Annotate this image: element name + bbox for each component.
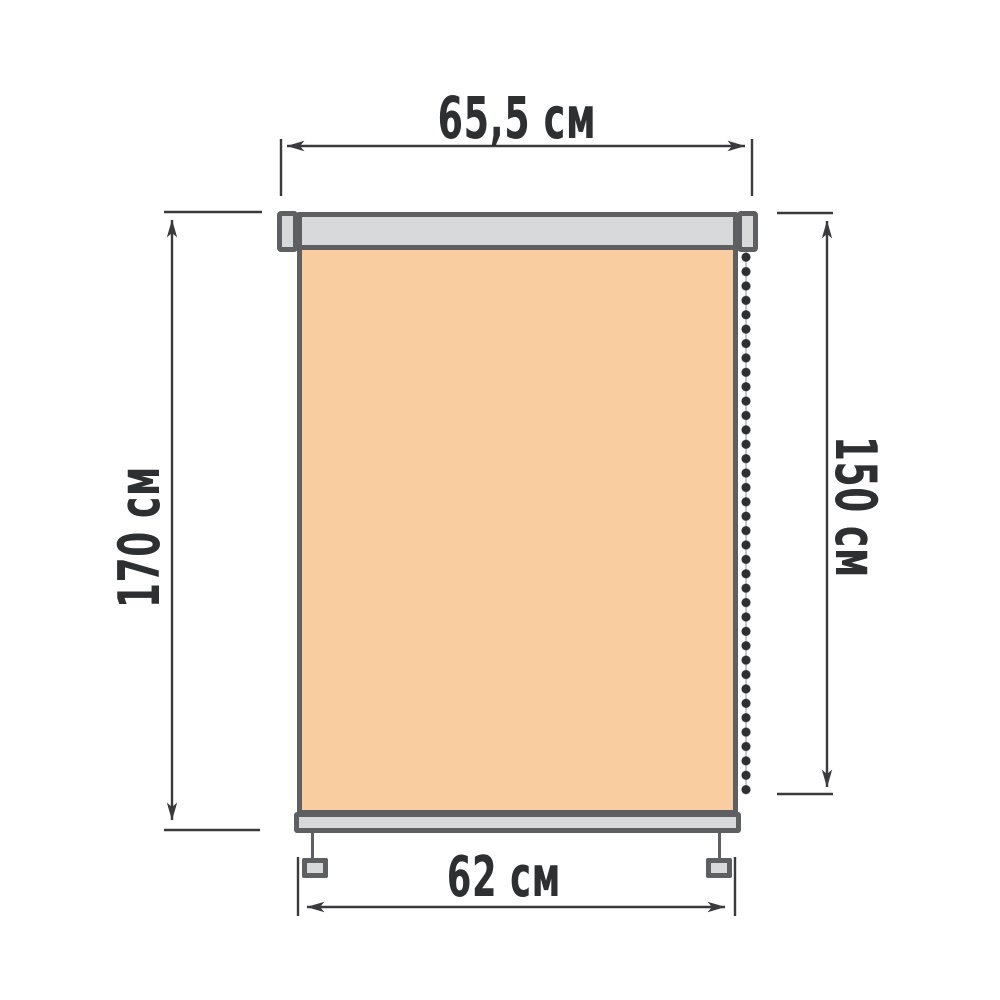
blind-fabric-panel (297, 245, 738, 815)
dimension-label-top-width: 65,5 см (372, 84, 662, 152)
bead-chain (741, 250, 751, 797)
dimension-label-bottom-width: 62 см (359, 845, 649, 910)
mounting-clip-left (302, 858, 328, 878)
mounting-clip-right (706, 858, 732, 878)
dimension-label-right-height: 150 см (825, 413, 885, 602)
cassette-end-cap-left (277, 211, 298, 252)
clip-stem-right (718, 832, 721, 859)
bottom-weight-rail (294, 812, 741, 833)
roller-blind-dimension-diagram: 65,5 см 170 см 150 см 62 см (0, 0, 1000, 1000)
cassette-bar (297, 212, 738, 250)
dimension-label-left-height: 170 см (110, 443, 170, 632)
cassette-end-cap-right (737, 211, 758, 252)
clip-stem-left (311, 832, 314, 859)
